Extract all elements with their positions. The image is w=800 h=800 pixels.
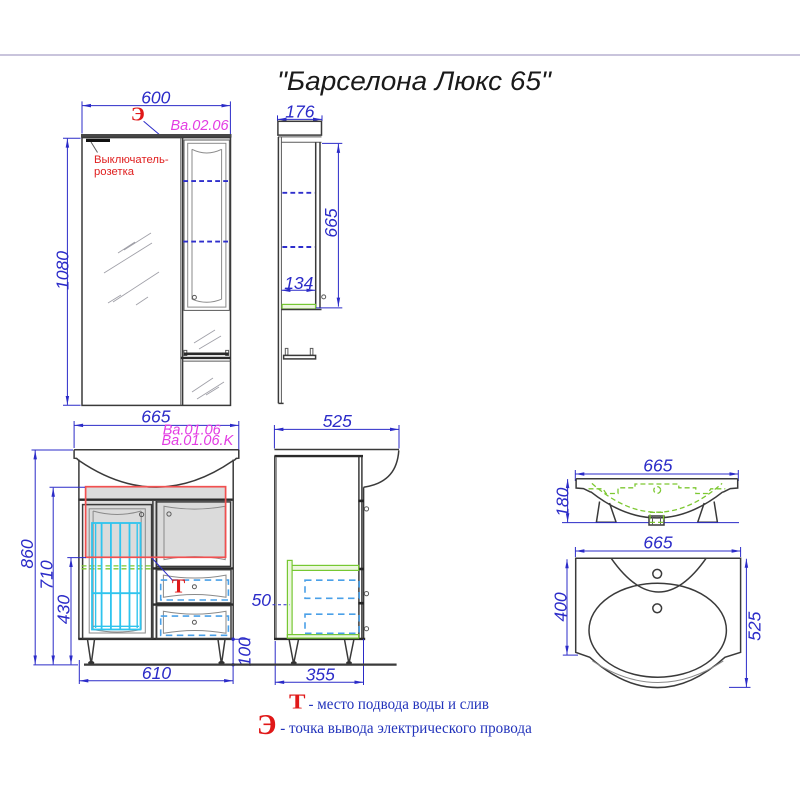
svg-text:430: 430 xyxy=(54,595,74,624)
svg-text:665: 665 xyxy=(643,532,672,552)
svg-text:600: 600 xyxy=(141,87,170,107)
svg-text:розетка: розетка xyxy=(94,166,135,178)
svg-text:1080: 1080 xyxy=(53,251,73,290)
svg-text:Т: Т xyxy=(289,689,306,713)
svg-text:180: 180 xyxy=(553,487,573,516)
svg-text:710: 710 xyxy=(36,560,56,589)
svg-text:Выключатель-: Выключатель- xyxy=(94,154,169,166)
svg-text:860: 860 xyxy=(17,539,37,568)
svg-text:Э: Э xyxy=(257,710,277,741)
svg-text:- точка вывода электрического: - точка вывода электрического провода xyxy=(280,720,532,737)
svg-text:176: 176 xyxy=(285,102,314,122)
svg-text:100: 100 xyxy=(234,637,254,666)
svg-text:Э: Э xyxy=(131,104,145,126)
svg-text:Ba.01.06.K: Ba.01.06.K xyxy=(162,433,235,449)
svg-text:665: 665 xyxy=(321,208,341,237)
svg-text:50: 50 xyxy=(252,590,272,610)
svg-text:355: 355 xyxy=(306,665,335,685)
svg-text:400: 400 xyxy=(550,592,570,621)
svg-text:610: 610 xyxy=(142,663,171,683)
svg-text:665: 665 xyxy=(643,455,672,475)
svg-text:- место подвода воды и слив: - место подвода воды и слив xyxy=(309,696,490,713)
svg-text:Ba.02.06: Ba.02.06 xyxy=(171,118,230,134)
svg-text:"Барселона Люкс 65": "Барселона Люкс 65" xyxy=(277,66,552,96)
svg-text:525: 525 xyxy=(323,411,352,431)
svg-text:Т: Т xyxy=(172,575,186,597)
svg-text:525: 525 xyxy=(745,611,765,640)
